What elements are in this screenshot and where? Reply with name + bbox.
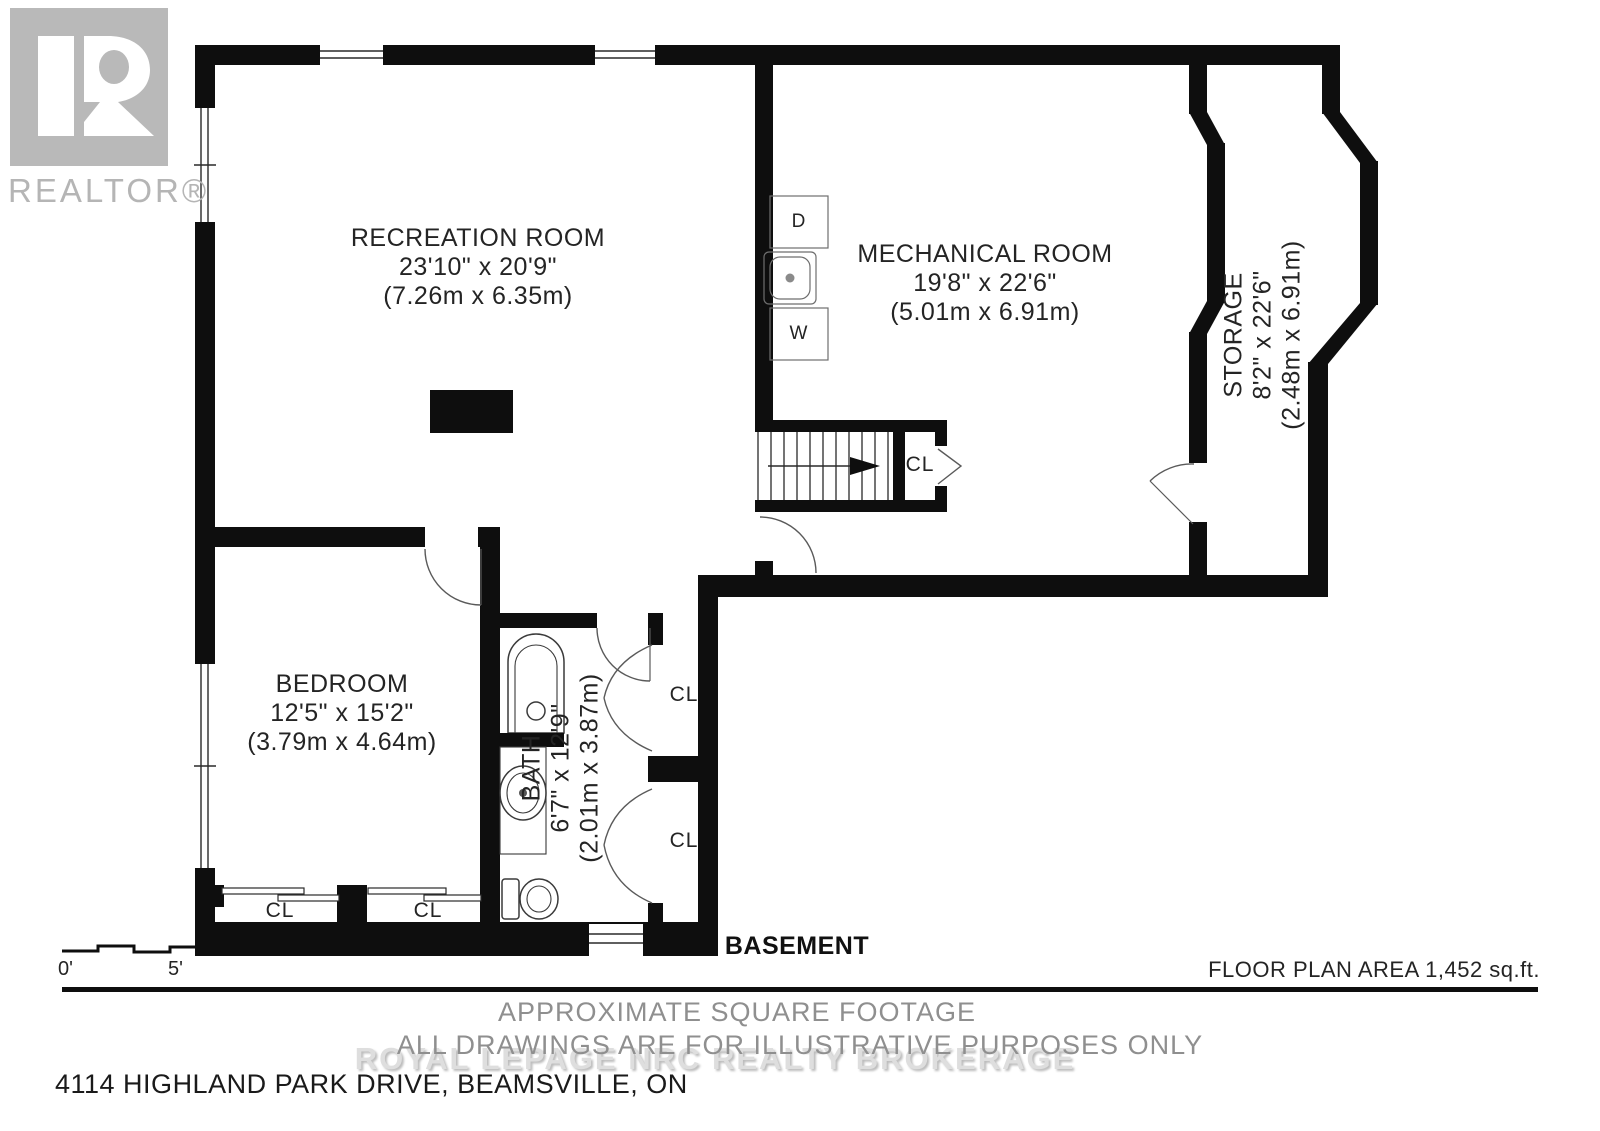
bifold-closet-bottom-b xyxy=(604,845,652,903)
stair-direction-arrow-icon xyxy=(768,457,880,475)
closet-label-bedroom-right: CL xyxy=(414,899,443,923)
room-dims-metric: (7.26m x 6.35m) xyxy=(351,282,605,311)
room-label-bath: BATH 6'7" x 12'9" (2.01m x 3.87m) xyxy=(518,673,605,863)
room-name: STORAGE xyxy=(1220,240,1249,430)
realtor-logo-icon xyxy=(10,8,168,166)
walls xyxy=(195,45,1378,956)
divider-rule xyxy=(62,987,1538,992)
bifold-closet-top-b xyxy=(604,698,652,751)
door-arc-bath xyxy=(597,628,650,681)
room-dims-imperial: 6'7" x 12'9" xyxy=(547,673,576,863)
room-dims-imperial: 8'2" x 22'6" xyxy=(1249,240,1278,430)
room-dims-imperial: 23'10" x 20'9" xyxy=(351,253,605,282)
window-left-bedroom xyxy=(193,664,217,868)
bifold-closet-bottom-a xyxy=(604,789,652,845)
illustrative-disclaimer: ALL DRAWINGS ARE FOR ILLUSTRATIVE PURPOS… xyxy=(397,1030,1203,1061)
window-top-left xyxy=(320,44,383,66)
room-dims-metric: (2.48m x 6.91m) xyxy=(1278,240,1307,430)
toilet-icon xyxy=(502,879,558,919)
room-dims-imperial: 12'5" x 15'2" xyxy=(247,699,437,728)
room-label-storage: STORAGE 8'2" x 22'6" (2.48m x 6.91m) xyxy=(1220,240,1307,430)
staircase xyxy=(758,432,888,500)
door-arc-storage xyxy=(1150,464,1194,481)
room-dims-metric: (3.79m x 4.64m) xyxy=(247,728,437,757)
room-label-bedroom: BEDROOM 12'5" x 15'2" (3.79m x 4.64m) xyxy=(247,670,437,757)
room-name: RECREATION ROOM xyxy=(351,224,605,253)
room-dims-metric: (5.01m x 6.91m) xyxy=(857,298,1112,327)
floor-name-title: BASEMENT xyxy=(725,932,869,961)
floor-plan-area-label: FLOOR PLAN AREA 1,452 sq.ft. xyxy=(1208,957,1540,983)
scale-end-label: 5' xyxy=(168,958,183,981)
closet-label-hall-bottom: CL xyxy=(670,829,699,853)
dryer-label: D xyxy=(792,211,807,233)
room-label-mechanical: MECHANICAL ROOM 19'8" x 22'6" (5.01m x 6… xyxy=(857,240,1112,327)
floor-plan-page: REALTOR® RECREATION ROOM 23'10" x 20'9" … xyxy=(0,0,1600,1131)
room-label-recreation: RECREATION ROOM 23'10" x 20'9" (7.26m x … xyxy=(351,224,605,311)
property-address: 4114 HIGHLAND PARK DRIVE, BEAMSVILLE, ON xyxy=(55,1069,688,1100)
window-top-right xyxy=(595,44,655,66)
door-mark-mech-closet xyxy=(938,449,961,484)
room-name: BEDROOM xyxy=(247,670,437,699)
room-name: MECHANICAL ROOM xyxy=(857,240,1112,269)
room-name: BATH xyxy=(518,673,547,863)
room-dims-imperial: 19'8" x 22'6" xyxy=(857,269,1112,298)
room-dims-metric: (2.01m x 3.87m) xyxy=(576,673,605,863)
approx-footage-note: APPROXIMATE SQUARE FOOTAGE xyxy=(498,997,976,1028)
realtor-wordmark: REALTOR® xyxy=(8,172,209,210)
closet-label-stairs: CL xyxy=(906,453,935,477)
door-arc-bedroom xyxy=(425,549,481,605)
washer-label: W xyxy=(790,323,809,345)
door-leaf-storage xyxy=(1150,481,1193,524)
scale-start-label: 0' xyxy=(58,958,73,981)
bifold-closet-top-a xyxy=(604,645,652,698)
closet-label-hall-top: CL xyxy=(670,683,699,707)
window-bottom-bath xyxy=(589,924,643,956)
closet-label-bedroom-left: CL xyxy=(266,899,295,923)
